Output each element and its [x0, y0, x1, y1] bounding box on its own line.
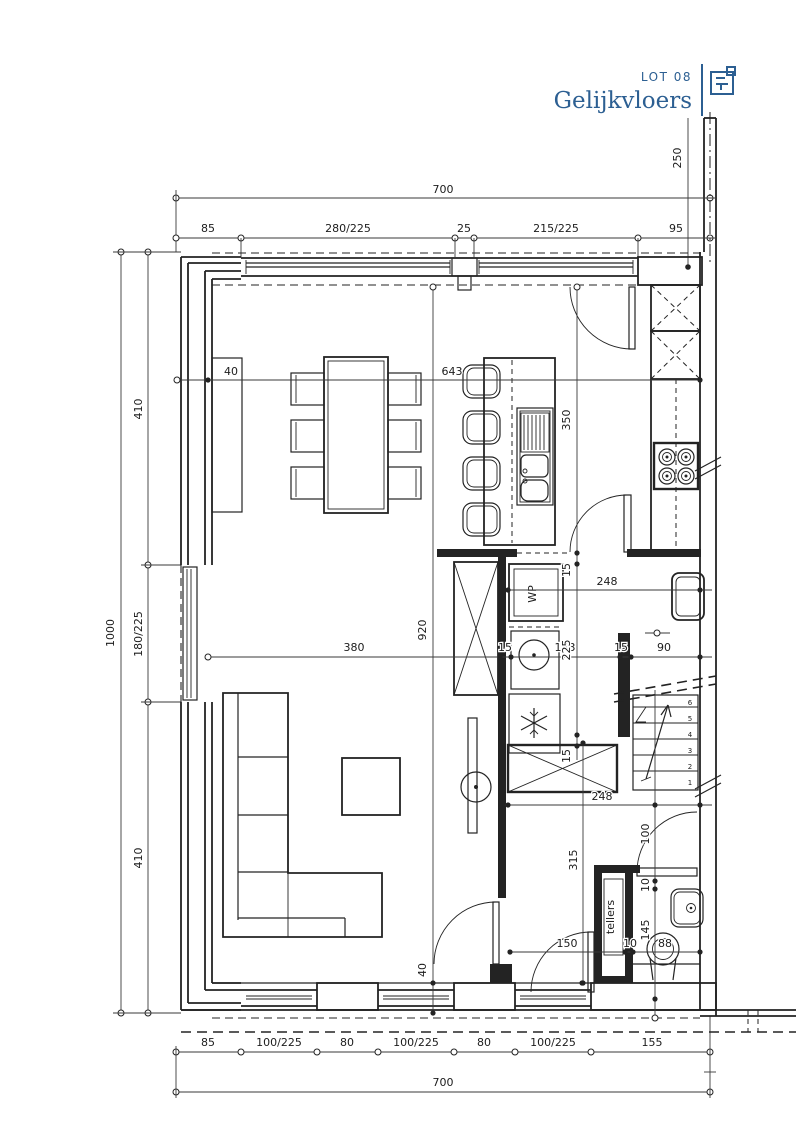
dim-88: 88	[658, 937, 672, 950]
dim-bot-4: 100/225	[393, 1036, 439, 1049]
window-top-left	[246, 260, 450, 274]
pier-2	[454, 983, 515, 1010]
heat-pump-label: WP	[526, 585, 539, 603]
outer-walls	[181, 252, 796, 1032]
dining-chairs-left	[291, 373, 324, 499]
title-block: LOT 08 Gelijkvloers	[554, 64, 735, 116]
sideboard	[212, 358, 242, 512]
neighbour-wall-upper: 250	[671, 112, 716, 1016]
dim-15b: 15	[614, 641, 628, 654]
dim-left-3: 410	[132, 848, 145, 869]
dim-bot-2: 100/225	[256, 1036, 302, 1049]
dim-band-15: 15	[560, 749, 573, 763]
dim-bot-6: 100/225	[530, 1036, 576, 1049]
stair-step-3: 3	[688, 747, 692, 755]
floorplan-drawing: LOT 08 Gelijkvloers 700 85 280/225 25 21…	[0, 0, 800, 1132]
lot-label: LOT 08	[641, 70, 692, 84]
kitchen-sink	[517, 408, 553, 505]
dim-left-1: 410	[132, 399, 145, 420]
dining-chairs-right	[388, 373, 421, 499]
right-wall	[695, 252, 721, 1010]
door-living-hall	[434, 902, 499, 964]
stair-step-1: 1	[688, 779, 692, 787]
storage-cabinet-x	[454, 562, 498, 695]
dim-right-250: 250	[671, 148, 684, 169]
plan-sheet-icon	[711, 67, 735, 94]
dim-15a: 15	[498, 641, 512, 654]
living-room	[223, 693, 400, 937]
dim-bot-5: 80	[477, 1036, 491, 1049]
dim-bot-7: 155	[642, 1036, 663, 1049]
dim-10a: 10	[639, 878, 652, 892]
dim-150: 150	[557, 937, 578, 950]
boiler-unit	[511, 631, 559, 689]
stair-step-5: 5	[688, 715, 692, 723]
door-kitchen	[570, 495, 631, 552]
stair-step-4: 4	[688, 731, 693, 739]
window-top-right	[479, 260, 633, 274]
snowflake-icon	[521, 708, 547, 738]
top-right-pier	[638, 257, 702, 285]
window-bottom-2	[378, 990, 454, 1006]
dim-left-2: 180/225	[132, 611, 145, 657]
dim-90: 90	[657, 641, 671, 654]
kitchen-island	[484, 358, 555, 545]
wall-utility-north-a	[437, 549, 517, 557]
dim-top-5: 95	[669, 222, 683, 235]
dim-closet-225: 225	[560, 640, 573, 661]
bar-stools	[463, 365, 500, 536]
dim-248-lower: 248	[592, 790, 613, 803]
washbasin	[671, 889, 703, 927]
bottom-wall	[181, 983, 796, 1032]
section-mark-lower	[695, 775, 721, 797]
duct-column	[461, 718, 491, 833]
door-terrace	[570, 287, 635, 349]
dimensions-bottom: 85 100/225 80 100/225 80 100/225 155 700	[173, 1016, 716, 1098]
stair-step-6: 6	[688, 699, 693, 707]
pier-1	[317, 983, 378, 1010]
dim-145: 145	[639, 920, 652, 941]
dim-248-upper: 248	[597, 575, 618, 588]
dimensions-left: 1000 410 180/225 410	[104, 249, 181, 1016]
dim-wall-40-bottom: 40	[416, 963, 429, 977]
dim-643: 643	[442, 365, 463, 378]
dim-10b: 10	[623, 937, 637, 950]
dim-wall-40-top: 40	[224, 365, 238, 378]
tall-cabinets	[651, 285, 700, 379]
coffee-table	[342, 758, 400, 815]
dimensions-top: 700 85 280/225 25 215/225 95	[173, 183, 713, 257]
dim-bot-3: 80	[340, 1036, 354, 1049]
dim-top-1: 85	[201, 222, 215, 235]
floor-title: Gelijkvloers	[554, 88, 692, 114]
dim-top-4: 215/225	[533, 222, 579, 235]
dim-350: 350	[560, 410, 573, 431]
floorplan-sheet: LOT 08 Gelijkvloers 700 85 280/225 25 21…	[0, 0, 800, 1132]
heat-pump-unit: WP	[509, 564, 563, 621]
meter-closet: tellers	[594, 873, 633, 983]
dim-bot-1: 85	[201, 1036, 215, 1049]
dim-top-overall: 700	[433, 183, 454, 196]
kitchen	[463, 285, 700, 549]
stair-step-2: 2	[688, 763, 692, 771]
interior-walls	[434, 287, 701, 992]
wall-utility-north-b	[627, 549, 701, 557]
dim-bottom-overall: 700	[433, 1076, 454, 1089]
wall-hall-stub	[490, 964, 512, 983]
dim-closet-15: 15	[560, 563, 573, 577]
dim-315: 315	[567, 850, 580, 871]
window-left	[181, 565, 197, 702]
meter-closet-label: tellers	[604, 900, 617, 934]
dim-top-3: 25	[457, 222, 471, 235]
wall-utility-west	[498, 557, 506, 898]
wall-wc-north	[594, 865, 640, 873]
stair-direction-arrow	[636, 705, 671, 781]
dim-380: 380	[344, 641, 365, 654]
bottom-right-wall	[591, 983, 716, 1010]
window-bottom-1	[241, 990, 317, 1006]
dim-top-2: 280/225	[325, 222, 371, 235]
dim-left-overall: 1000	[104, 619, 117, 647]
dim-100: 100	[639, 824, 652, 845]
window-bottom-3	[515, 990, 591, 1006]
dim-920b: 920	[416, 620, 429, 641]
